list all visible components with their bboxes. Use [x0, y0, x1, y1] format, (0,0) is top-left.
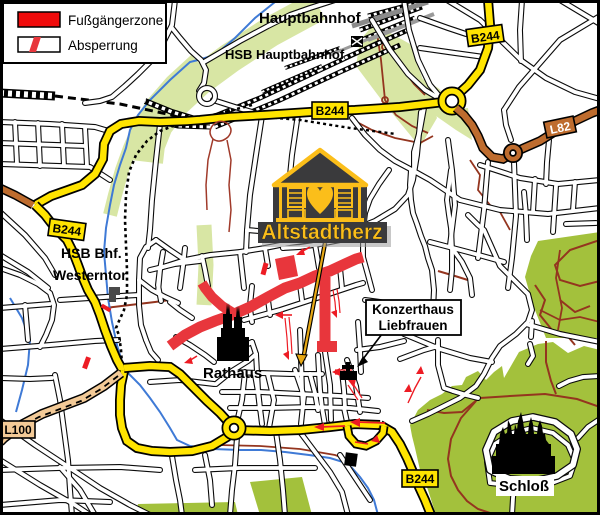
- svg-text:B244: B244: [316, 104, 345, 118]
- svg-text:Liebfrauen: Liebfrauen: [378, 318, 447, 333]
- svg-text:B244: B244: [406, 472, 435, 486]
- svg-text:Schloß: Schloß: [499, 478, 549, 495]
- svg-text:Rathaus: Rathaus: [203, 365, 262, 382]
- svg-text:HSB Bhf.: HSB Bhf.: [61, 245, 122, 261]
- svg-text:Konzerthaus: Konzerthaus: [372, 302, 454, 317]
- svg-text:Absperrung: Absperrung: [68, 38, 138, 53]
- svg-text:Hauptbahnhof: Hauptbahnhof: [259, 10, 362, 27]
- svg-text:Fußgängerzone: Fußgängerzone: [68, 13, 163, 28]
- svg-text:Westerntor: Westerntor: [53, 267, 127, 283]
- svg-text:Altstadtherz: Altstadtherz: [261, 221, 382, 244]
- svg-text:HSB Hauptbahnhof: HSB Hauptbahnhof: [225, 47, 345, 62]
- svg-text:L100: L100: [4, 423, 32, 437]
